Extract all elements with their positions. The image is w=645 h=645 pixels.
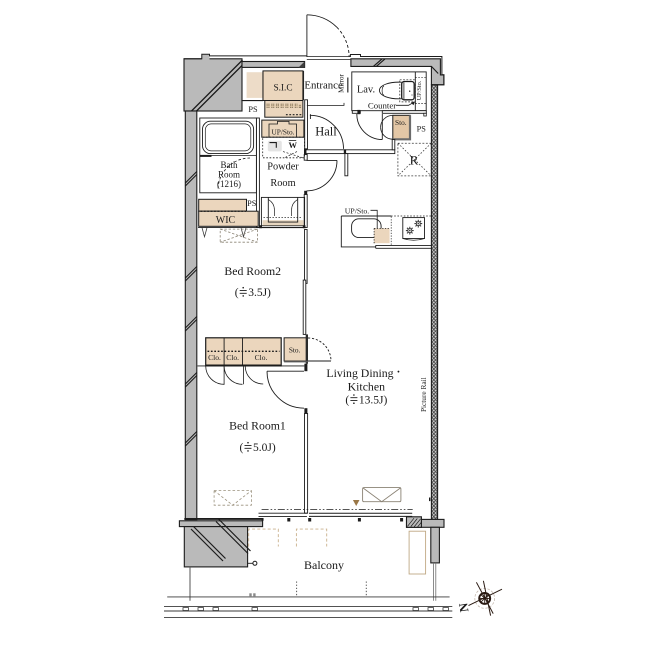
svg-text:(1216): (1216): [217, 179, 241, 189]
svg-text:S.I.C: S.I.C: [273, 84, 292, 94]
svg-text:PS: PS: [248, 105, 258, 114]
svg-text:Counter: Counter: [368, 100, 396, 110]
svg-text:Powder: Powder: [267, 161, 299, 172]
svg-text:13.5J): 13.5J): [359, 394, 388, 406]
svg-text:(: (: [235, 287, 239, 299]
svg-text:Clo.: Clo.: [226, 353, 239, 362]
svg-text:(: (: [240, 442, 244, 454]
svg-text:Bath: Bath: [221, 160, 238, 170]
svg-text:Bed Room2: Bed Room2: [224, 264, 281, 278]
svg-text:Sto.: Sto.: [395, 118, 407, 127]
svg-text:PS: PS: [417, 124, 427, 133]
svg-text:Clo.: Clo.: [208, 353, 221, 362]
svg-text:PS: PS: [247, 199, 257, 208]
svg-text:(: (: [345, 394, 349, 406]
svg-text:WIC: WIC: [216, 215, 236, 226]
svg-text:Sto.: Sto.: [289, 345, 301, 354]
svg-text:Balcony: Balcony: [304, 558, 344, 572]
svg-text:Mirror: Mirror: [337, 74, 345, 93]
svg-text:UP/Sto.: UP/Sto.: [272, 127, 295, 136]
svg-text:Room: Room: [270, 178, 295, 189]
svg-text:Hall: Hall: [315, 124, 337, 138]
svg-text:Living Dining ·: Living Dining ·: [326, 364, 401, 381]
svg-text:UP/Sto.: UP/Sto.: [345, 206, 370, 215]
svg-text:5.0J): 5.0J): [253, 442, 276, 454]
svg-text:Clo.: Clo.: [255, 353, 268, 362]
svg-text:Bed Room1: Bed Room1: [229, 418, 286, 432]
svg-text:3.5J): 3.5J): [248, 287, 271, 299]
svg-text:Picture Rail: Picture Rail: [419, 377, 428, 412]
svg-text:Lav.: Lav.: [357, 85, 375, 96]
svg-text:UP/Sto.: UP/Sto.: [416, 80, 423, 100]
svg-text:R: R: [410, 153, 419, 168]
svg-text:Kitchen: Kitchen: [348, 379, 385, 393]
svg-text:W: W: [289, 140, 298, 150]
